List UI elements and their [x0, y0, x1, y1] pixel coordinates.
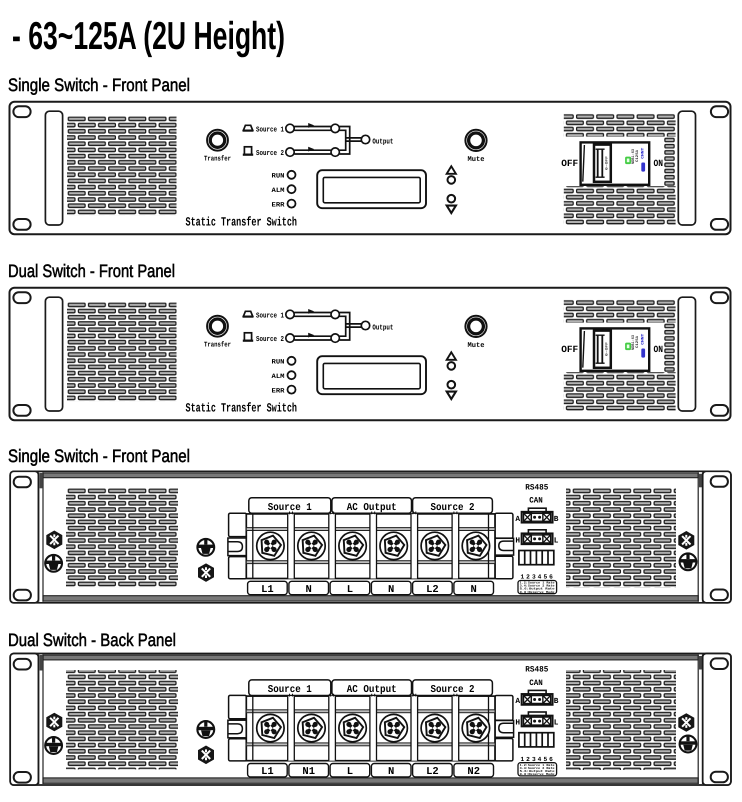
svg-text:5: 5	[543, 756, 547, 763]
svg-text:ALM: ALM	[272, 373, 285, 380]
svg-text:OFF: OFF	[561, 344, 578, 355]
svg-text:4: 4	[538, 574, 542, 581]
svg-text:ON: ON	[653, 344, 663, 355]
svg-text:Mute: Mute	[468, 156, 485, 164]
svg-text:1: 1	[520, 574, 524, 581]
svg-text:N: N	[388, 584, 394, 596]
svg-text:Dual Switch - Front Panel: Dual Switch - Front Panel	[8, 261, 175, 281]
svg-text:Source 2: Source 2	[256, 149, 284, 158]
svg-text:N: N	[388, 766, 394, 778]
svg-text:Single Switch - Front Panel: Single Switch - Front Panel	[8, 446, 190, 466]
svg-text:Output: Output	[372, 323, 393, 332]
svg-text:Static Transfer Switch: Static Transfer Switch	[186, 402, 298, 416]
svg-text:L1: L1	[261, 766, 274, 778]
svg-text:2: 2	[526, 756, 530, 763]
svg-text:Source 2: Source 2	[256, 335, 284, 344]
svg-text:B: B	[554, 515, 559, 524]
svg-text:L: L	[347, 584, 353, 596]
svg-text:1: 1	[520, 756, 524, 763]
svg-text:Source 2: Source 2	[431, 684, 475, 696]
svg-text:Source 1: Source 1	[256, 125, 284, 134]
svg-text:0.0:Reserve Mode: 0.0:Reserve Mode	[520, 772, 555, 776]
svg-text:C125A: C125A	[635, 149, 640, 162]
svg-text:Source 2: Source 2	[431, 502, 475, 514]
svg-text:0-OFF: 0-OFF	[604, 342, 609, 356]
svg-text:CAN: CAN	[529, 497, 543, 506]
svg-text:OFF: OFF	[561, 158, 578, 169]
svg-text:L2: L2	[426, 766, 439, 778]
svg-text:L: L	[554, 537, 559, 546]
svg-text:N: N	[471, 584, 477, 596]
svg-text:L1: L1	[261, 584, 274, 596]
svg-text:Source 1: Source 1	[256, 311, 284, 320]
svg-text:NDB1-63: NDB1-63	[631, 148, 636, 164]
svg-text:L2: L2	[426, 584, 439, 596]
svg-text:N1: N1	[302, 766, 315, 778]
svg-text:H: H	[515, 719, 520, 728]
svg-text:RS485: RS485	[525, 484, 548, 493]
svg-text:ALM: ALM	[272, 187, 285, 194]
svg-text:2: 2	[526, 574, 530, 581]
svg-text:4: 4	[538, 756, 542, 763]
svg-text:CAN: CAN	[529, 679, 543, 688]
svg-text:L: L	[554, 719, 559, 728]
svg-text:ERR: ERR	[272, 201, 285, 208]
svg-text:0-OFF: 0-OFF	[604, 156, 609, 170]
svg-text:N: N	[306, 584, 312, 596]
svg-text:L: L	[347, 766, 353, 778]
svg-text:ON: ON	[653, 158, 663, 169]
svg-text:N2: N2	[467, 766, 480, 778]
svg-text:NDB1-63: NDB1-63	[631, 334, 636, 350]
svg-text:Output: Output	[372, 137, 393, 146]
svg-text:RS485: RS485	[525, 666, 548, 675]
svg-text:Mute: Mute	[468, 342, 485, 350]
svg-text:A: A	[515, 515, 520, 524]
svg-text:3: 3	[532, 756, 536, 763]
svg-text:5: 5	[543, 574, 547, 581]
svg-text:Transfer: Transfer	[204, 341, 231, 350]
svg-text:- 63~125A (2U Height): - 63~125A (2U Height)	[12, 15, 285, 58]
svg-text:Static Transfer Switch: Static Transfer Switch	[186, 216, 298, 230]
svg-text:Transfer: Transfer	[204, 155, 231, 164]
svg-text:Dual Switch - Back Panel: Dual Switch - Back Panel	[8, 630, 176, 650]
svg-text:H: H	[515, 537, 520, 546]
svg-text:ERR: ERR	[272, 387, 285, 394]
svg-text:6: 6	[549, 574, 553, 581]
svg-text:C125A: C125A	[635, 335, 640, 348]
svg-text:CHNT: CHNT	[640, 333, 645, 345]
svg-text:RUN: RUN	[272, 173, 285, 180]
svg-text:B: B	[554, 697, 559, 706]
svg-text:3: 3	[532, 574, 536, 581]
svg-text:CHNT: CHNT	[640, 147, 645, 159]
svg-text:0.0:Reserve Mode: 0.0:Reserve Mode	[520, 590, 555, 594]
svg-text:Single Switch - Front Panel: Single Switch - Front Panel	[8, 75, 190, 95]
svg-text:RUN: RUN	[272, 359, 285, 366]
svg-text:6: 6	[549, 756, 553, 763]
svg-text:A: A	[515, 697, 520, 706]
